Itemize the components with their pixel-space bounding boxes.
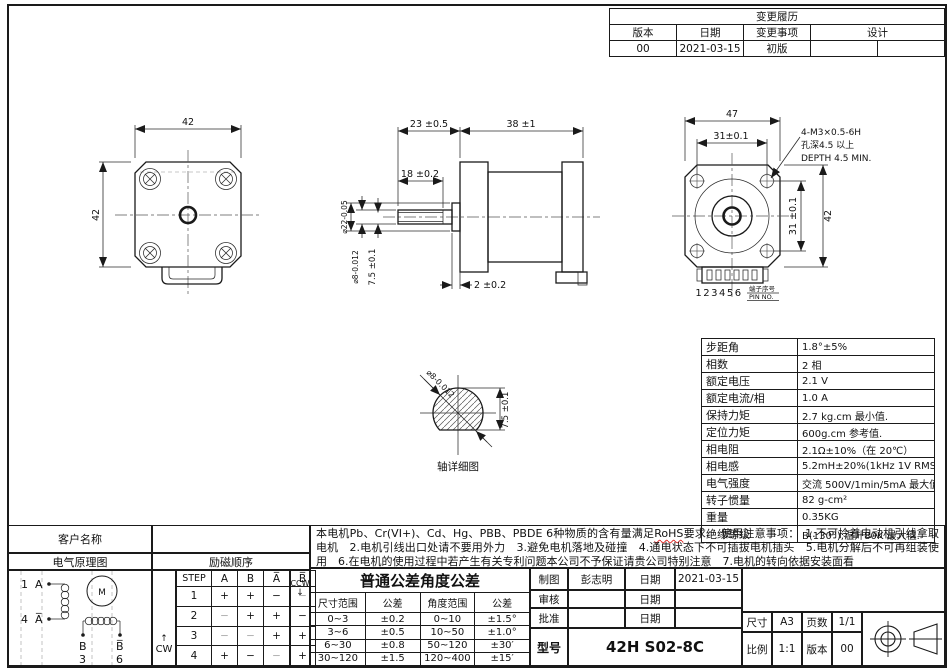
spec-value: 1.8°±5% xyxy=(798,339,935,356)
side-dim-shaft-dia: ⌀8-0.012 xyxy=(351,250,360,284)
drafter-label: 制图 xyxy=(530,568,568,590)
drafter-name: 彭志明 xyxy=(568,568,625,590)
check-date xyxy=(675,590,742,608)
seq-cell: 3 xyxy=(177,626,212,646)
scale-value: 1:1 xyxy=(772,632,802,666)
change-history-title: 变更履历 xyxy=(610,9,945,25)
spec-label: 相数 xyxy=(702,356,798,373)
side-dim-boss: 2 ±0.2 xyxy=(474,280,506,291)
spec-label: 定位力矩 xyxy=(702,424,798,441)
seq-cell: 1 xyxy=(177,587,212,607)
terminal-b: B xyxy=(79,640,87,653)
shaft-detail-flat: 7.5 ±0.1 xyxy=(501,392,511,429)
customer-name-value xyxy=(152,525,310,553)
spec-value: 2.1 V xyxy=(798,373,935,390)
tolerance-title: 普通公差角度公差 xyxy=(311,569,530,593)
spec-table: 步距角1.8°±5% 相数2 相 额定电压2.1 V 额定电流/相1.0 A 保… xyxy=(701,338,935,543)
projection-symbol xyxy=(862,612,945,666)
seq-cell: − xyxy=(238,646,264,666)
shaft-detail: ⌀8-0.012 7.5 ±0.1 轴详细图 xyxy=(420,368,511,473)
tol-cell: 0~3 xyxy=(311,613,366,626)
spec-value: 2 相 xyxy=(798,356,935,373)
terminal-a-bar: A̅ xyxy=(35,613,43,626)
side-dim-shaft-len: 23 ±0.5 xyxy=(410,119,448,130)
col-version: 版本 xyxy=(610,25,677,41)
seq-cell: − xyxy=(212,606,238,626)
seq-header-b: B xyxy=(238,571,264,587)
rear-dim-width: 47 xyxy=(726,109,738,120)
spec-label: 相电阻 xyxy=(702,441,798,458)
spec-label: 相电感 xyxy=(702,458,798,475)
rear-connector xyxy=(697,267,768,283)
version-value: 00 xyxy=(832,632,862,666)
spec-value: 600g.cm 参考值. xyxy=(798,424,935,441)
tol-cell: ±0.2 xyxy=(365,613,420,626)
model-label: 型号 xyxy=(530,628,568,666)
terminal-4: 4 xyxy=(21,613,28,626)
col-date: 日期 xyxy=(677,25,744,41)
pages-value: 1/1 xyxy=(832,612,862,632)
tol-cell: ±0.8 xyxy=(365,639,420,652)
tol-cell: 3~6 xyxy=(311,626,366,639)
ccw-direction: CCW ↓ xyxy=(290,570,310,666)
terminal-1: 1 xyxy=(21,578,28,591)
seq-cell: + xyxy=(238,587,264,607)
seq-header-a-bar: A̅ xyxy=(264,571,290,587)
seq-header-a: A xyxy=(212,571,238,587)
checker-name xyxy=(568,590,625,608)
titleblock-empty xyxy=(742,568,945,612)
spec-label: 额定电流/相 xyxy=(702,390,798,407)
terminal-b-bar: B̅ xyxy=(116,640,124,653)
terminal-3: 3 xyxy=(79,653,86,665)
rear-dim-height: 42 xyxy=(823,210,834,222)
spec-label: 额定电压 xyxy=(702,373,798,390)
tol-cell: ±1.0° xyxy=(475,626,530,639)
spec-label: 重量 xyxy=(702,509,798,526)
rear-view: 123456 端子序号 PIN NO. 47 31±0.1 31 ±0.1 42… xyxy=(672,109,871,301)
tol-cell: 30~120 xyxy=(311,652,366,665)
rohs-notes: 本电机Pb、Cr(VI+)、Cd、Hg、PBB、PBDE 6种物质的含有量满足R… xyxy=(310,525,945,568)
rear-callout-line1: 4-M3×0.5-6H xyxy=(801,128,861,138)
seq-cell: + xyxy=(212,587,238,607)
date-label-2: 日期 xyxy=(625,590,675,608)
tol-cell: 120~400 xyxy=(420,652,475,665)
rohs-term: RoHS xyxy=(654,527,683,540)
side-dim-flat-len: 18 ±0.2 xyxy=(401,169,439,180)
seq-cell: + xyxy=(212,646,238,666)
shaft-section xyxy=(433,388,483,430)
cw-direction: ↑ CW xyxy=(152,570,176,666)
tolerance-table: 普通公差角度公差 尺寸范围 公差 角度范围 公差 0~3±0.20~10±1.5… xyxy=(310,568,530,666)
terminal-a: A xyxy=(35,578,43,591)
date-label-1: 日期 xyxy=(625,568,675,590)
drawing-sheet: 变更履历 版本 日期 变更事项 设计 00 2021-03-15 初版 xyxy=(0,0,951,671)
rear-pin-numbers: 123456 xyxy=(695,288,742,299)
pages-label: 页数 xyxy=(802,612,832,632)
tol-header-angle-range: 角度范围 xyxy=(420,593,475,613)
rear-pin-label-en: PIN NO. xyxy=(749,293,774,301)
seq-cell: + xyxy=(264,626,290,646)
seq-cell: − xyxy=(264,587,290,607)
spec-label: 步距角 xyxy=(702,339,798,356)
side-view: 23 ±0.5 38 ±1 18 ±0.2 2 ±0.2 ⌀22-0.05 ⌀8… xyxy=(340,119,600,291)
approver-name xyxy=(568,608,625,628)
rear-dim-hole-span-v: 31 ±0.1 xyxy=(788,197,799,235)
tol-cell: 10~50 xyxy=(420,626,475,639)
ccw-arrow-icon: ↓ xyxy=(296,588,304,598)
model-number: 42H S02-8C xyxy=(568,628,742,666)
size-label: 尺寸 xyxy=(742,612,772,632)
col-designer: 设计 xyxy=(811,25,945,41)
tol-cell: 6~30 xyxy=(311,639,366,652)
tol-cell: ±1.5 xyxy=(365,652,420,665)
approve-date xyxy=(675,608,742,628)
side-connector xyxy=(556,272,587,283)
seq-cell: − xyxy=(238,626,264,646)
seq-cell: 4 xyxy=(177,646,212,666)
checker-label: 审核 xyxy=(530,590,568,608)
tol-cell: ±1.5° xyxy=(475,613,530,626)
rear-callout-line3: DEPTH 4.5 MIN. xyxy=(801,154,871,164)
draw-date: 2021-03-15 xyxy=(675,568,742,590)
spec-value: 交流 500V/1min/5mA 最大值. xyxy=(798,475,935,492)
spec-label: 转子惯量 xyxy=(702,492,798,509)
tol-cell: ±15′ xyxy=(475,652,530,665)
front-connector xyxy=(162,267,222,284)
side-dim-body-len: 38 ±1 xyxy=(506,119,535,130)
date-label-3: 日期 xyxy=(625,608,675,628)
spec-value: 0.35KG xyxy=(798,509,935,526)
terminal-6: 6 xyxy=(116,653,123,665)
cw-arrow-icon: ↑ xyxy=(160,634,168,644)
rear-callout-line2: 孔深4.5 以上 xyxy=(801,140,854,151)
seq-cell: 2 xyxy=(177,606,212,626)
tol-header-dim-range: 尺寸范围 xyxy=(311,593,366,613)
col-item: 变更事项 xyxy=(744,25,811,41)
seq-cell: − xyxy=(212,626,238,646)
seq-header-step: STEP xyxy=(177,571,212,587)
change-history-table: 变更履历 版本 日期 变更事项 设计 00 2021-03-15 初版 xyxy=(609,8,945,57)
version-label: 版本 xyxy=(802,632,832,666)
spec-value: 2.7 kg.cm 最小值. xyxy=(798,407,935,424)
customer-name-label: 客户名称 xyxy=(8,525,152,553)
schematic-diagram: 1 A 4 A̅ M B B̅ 3 6 xyxy=(8,570,152,666)
seq-cell: + xyxy=(238,606,264,626)
seq-cell: + xyxy=(264,606,290,626)
spec-value: 2.1Ω±10%（在 20℃） xyxy=(798,441,935,458)
tol-header-tol2: 公差 xyxy=(475,593,530,613)
third-angle-projection-icon xyxy=(863,613,944,665)
shaft-detail-caption: 轴详细图 xyxy=(437,460,479,473)
approver-label: 批准 xyxy=(530,608,568,628)
tol-header-tol: 公差 xyxy=(365,593,420,613)
tol-cell: ±0.5 xyxy=(365,626,420,639)
rear-dim-hole-span-h: 31±0.1 xyxy=(713,131,748,142)
sequence-title: 励磁顺序 xyxy=(152,553,310,570)
spec-label: 保持力矩 xyxy=(702,407,798,424)
front-view: 42 42 xyxy=(91,117,261,295)
spec-value: 5.2mH±20%(1kHz 1V RMS) xyxy=(798,458,935,475)
front-dim-width: 42 xyxy=(182,117,194,128)
tol-cell: 50~120 xyxy=(420,639,475,652)
motor-symbol: M xyxy=(98,588,106,598)
side-dim-flat-depth: 7.5 ±0.1 xyxy=(368,249,378,286)
tol-cell: 0~10 xyxy=(420,613,475,626)
spec-label: 电气强度 xyxy=(702,475,798,492)
spec-value: 82 g-cm² xyxy=(798,492,935,509)
coil-a xyxy=(61,584,69,619)
rear-pin-label-cn: 端子序号 xyxy=(749,284,776,293)
spec-value: 1.0 A xyxy=(798,390,935,407)
side-dim-boss-dia: ⌀22-0.05 xyxy=(340,200,349,234)
tol-cell: ±30′ xyxy=(475,639,530,652)
seq-cell: − xyxy=(264,646,290,666)
schematic-title: 电气原理图 xyxy=(8,553,152,570)
size-value: A3 xyxy=(772,612,802,632)
front-dim-height: 42 xyxy=(91,209,102,221)
scale-label: 比例 xyxy=(742,632,772,666)
